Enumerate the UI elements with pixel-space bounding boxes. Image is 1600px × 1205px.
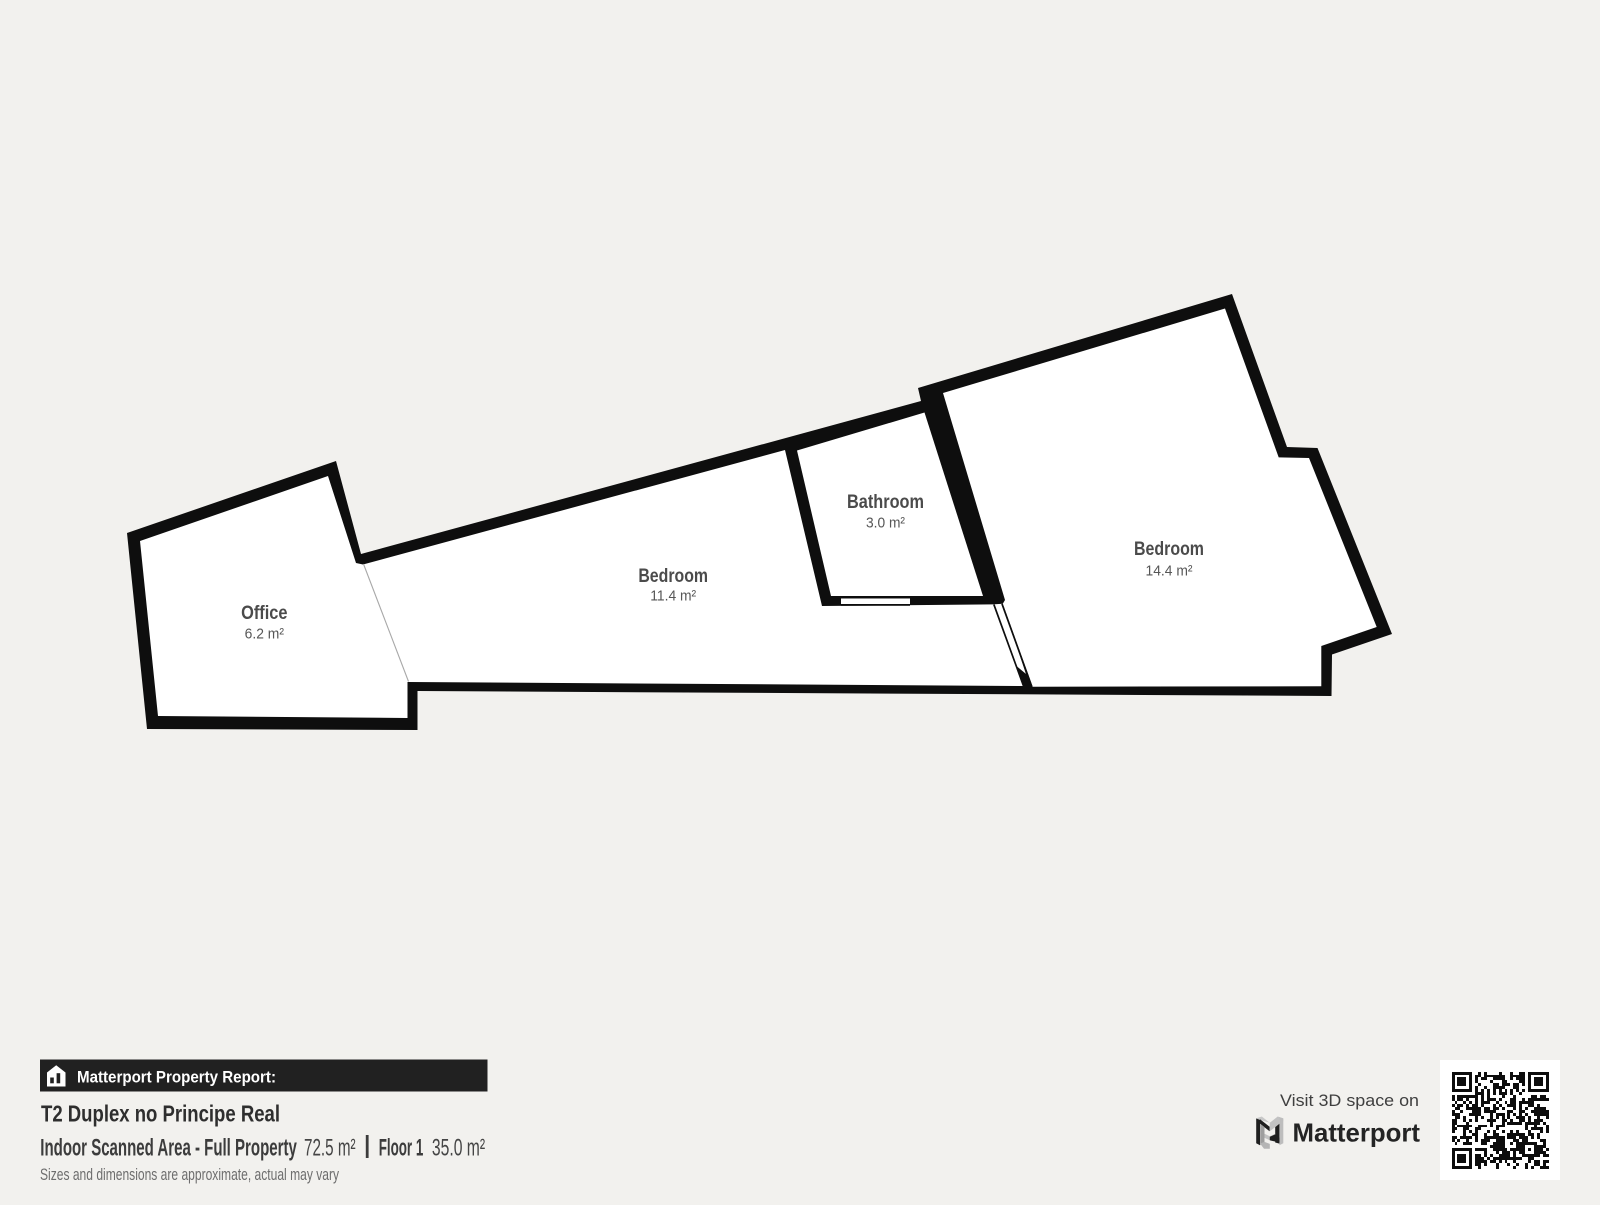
svg-text:6.2 m²: 6.2 m² bbox=[245, 626, 284, 643]
svg-text:Office: Office bbox=[241, 603, 287, 624]
svg-text:Matterport: Matterport bbox=[1293, 1118, 1421, 1148]
svg-text:Floor 1: Floor 1 bbox=[379, 1135, 424, 1162]
svg-text:11.4 m²: 11.4 m² bbox=[650, 588, 696, 605]
svg-text:Bedroom: Bedroom bbox=[638, 566, 708, 587]
svg-text:Matterport Property Report:: Matterport Property Report: bbox=[77, 1068, 276, 1087]
svg-text:Bedroom: Bedroom bbox=[1134, 539, 1204, 560]
svg-text:Indoor Scanned Area - Full Pro: Indoor Scanned Area - Full Property bbox=[40, 1135, 297, 1162]
svg-text:Sizes and dimensions are appro: Sizes and dimensions are approximate, ac… bbox=[40, 1165, 339, 1184]
svg-text:72.5 m²: 72.5 m² bbox=[304, 1135, 356, 1162]
svg-text:T2 Duplex no Principe Real: T2 Duplex no Principe Real bbox=[41, 1101, 280, 1127]
svg-text:Bathroom: Bathroom bbox=[847, 492, 924, 513]
svg-text:14.4 m²: 14.4 m² bbox=[1146, 563, 1193, 580]
svg-text:3.0 m²: 3.0 m² bbox=[866, 515, 905, 532]
svg-text:35.0 m²: 35.0 m² bbox=[432, 1135, 485, 1162]
svg-text:Visit 3D space on: Visit 3D space on bbox=[1280, 1091, 1419, 1110]
